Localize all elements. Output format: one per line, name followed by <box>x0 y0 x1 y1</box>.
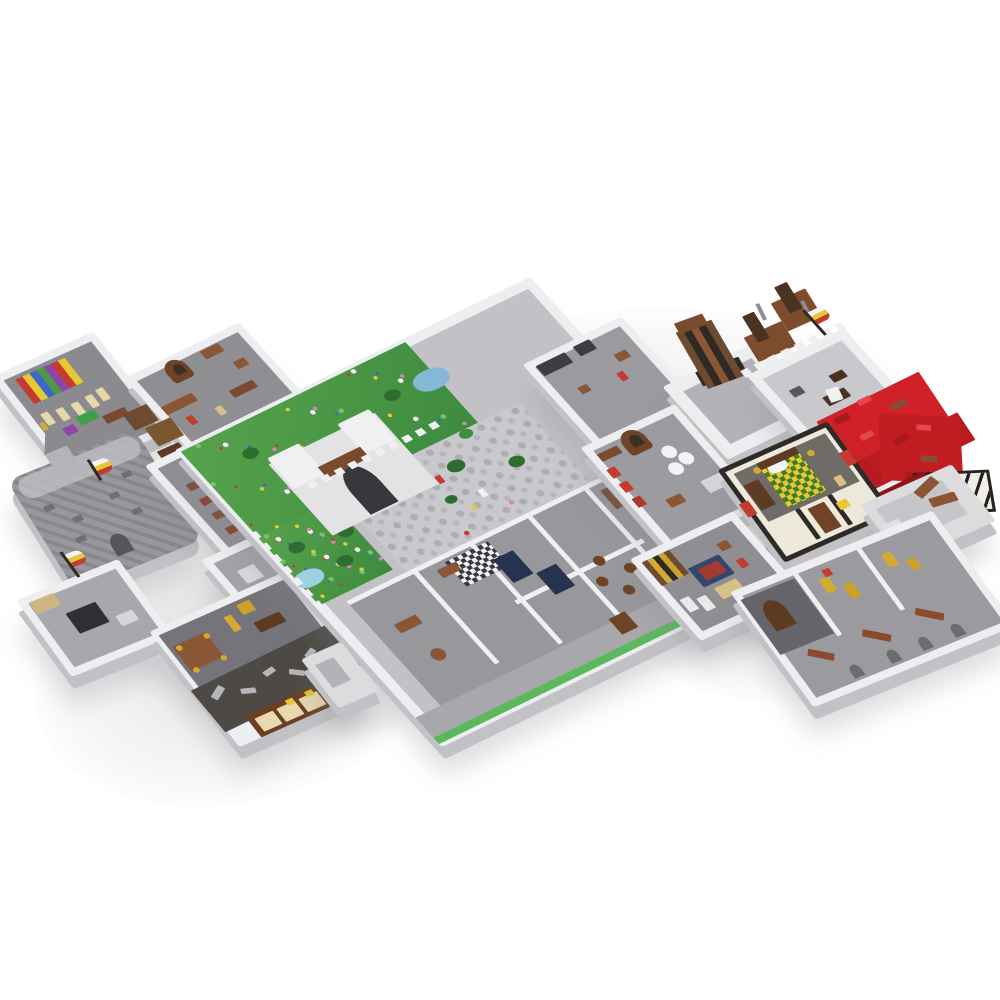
shingle <box>108 491 121 500</box>
flower <box>263 533 271 539</box>
roof-arch-door <box>106 530 135 556</box>
flower <box>249 522 254 526</box>
product-render-stage <box>0 0 1000 1000</box>
shingle <box>75 535 88 544</box>
shingle <box>72 514 85 523</box>
flower <box>372 375 378 380</box>
flower <box>262 483 267 487</box>
flower <box>339 582 344 586</box>
flower <box>259 486 265 491</box>
lego-castle-scene <box>0 0 1000 1000</box>
flower <box>194 443 202 449</box>
flower <box>350 368 358 374</box>
step-block <box>315 657 351 688</box>
flagged-ruin-tower-module <box>40 572 150 664</box>
roof-brick <box>917 425 932 431</box>
flower <box>412 415 420 421</box>
shingle <box>43 504 56 513</box>
flower <box>334 413 339 417</box>
flower <box>319 594 325 599</box>
flower <box>354 547 362 553</box>
armory-hall-module-top <box>730 511 1000 708</box>
flagged-ruin-tower-module-top <box>16 559 174 677</box>
armory-hall-module <box>764 540 982 678</box>
flower <box>234 484 239 488</box>
flower <box>209 481 217 487</box>
flower <box>219 446 224 450</box>
flower <box>337 408 345 414</box>
flower <box>284 407 290 412</box>
flower <box>347 373 352 377</box>
flower <box>462 421 468 426</box>
flower <box>294 524 300 529</box>
tree-tuft <box>381 387 404 403</box>
flower <box>222 441 230 447</box>
flower <box>309 409 317 415</box>
flower <box>342 542 348 547</box>
flower <box>272 447 278 452</box>
small-ruin-piece <box>318 645 362 705</box>
shingle <box>131 507 144 516</box>
flower <box>397 377 405 383</box>
spear-rack-stand <box>686 318 734 384</box>
flower <box>274 443 279 447</box>
flower <box>284 489 292 495</box>
roof-brick <box>921 456 938 464</box>
tree-tuft <box>239 445 262 461</box>
flower <box>387 413 393 418</box>
tree-tuft <box>333 553 356 569</box>
flower <box>291 564 296 568</box>
shingle <box>121 470 134 479</box>
flower <box>375 372 380 376</box>
